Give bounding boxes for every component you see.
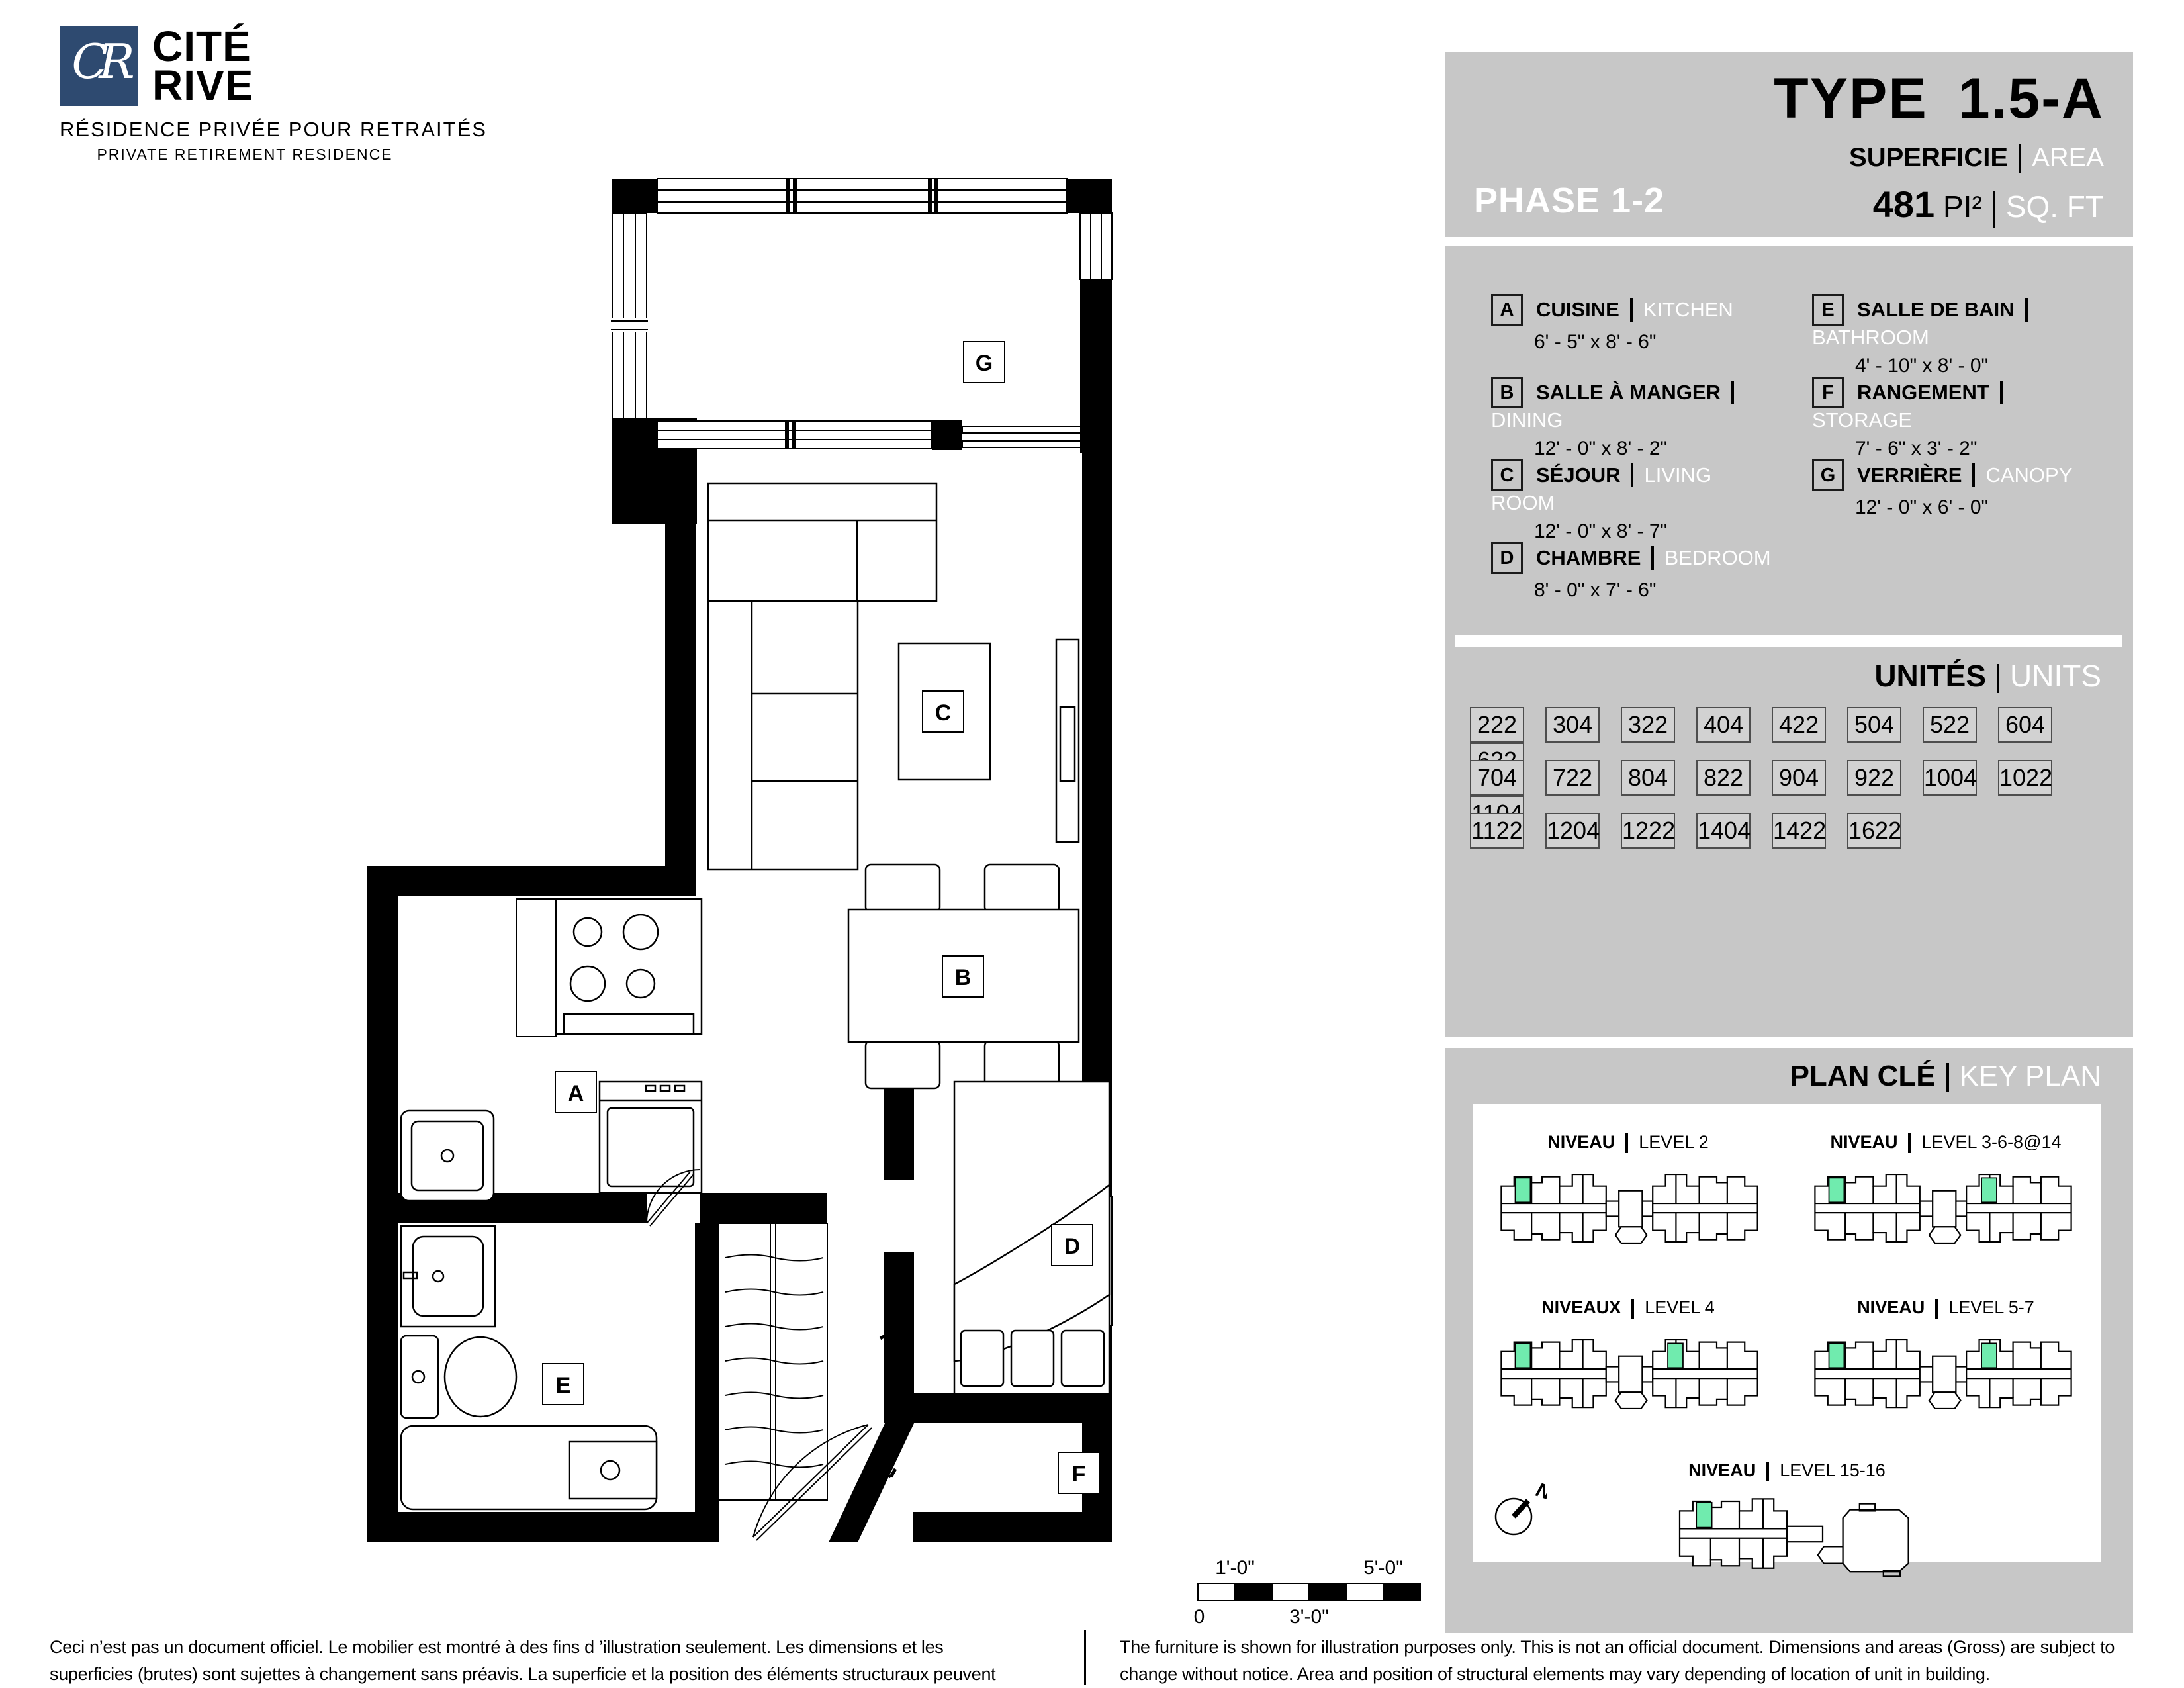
logo-subtitle-fr: RÉSIDENCE PRIVÉE POUR RETRAITÉS <box>60 118 457 142</box>
unit-number: 304 <box>1545 707 1600 743</box>
unit-number: 1622 <box>1847 813 1901 849</box>
disclaimer-en: The furniture is shown for illustration … <box>1120 1634 2119 1687</box>
legend-item-storage: FRANGEMENTSTORAGE 7' - 6" x 3' - 2" <box>1812 377 2103 459</box>
unit-number: 504 <box>1847 707 1901 743</box>
room-label-b: B <box>942 956 983 997</box>
units-title: UNITÉSUNITS <box>1874 658 2101 694</box>
room-label-e: E <box>543 1364 584 1405</box>
separator-bar <box>1455 635 2122 647</box>
level-3-6-8-label: NIVEAULEVEL 3-6-8@14 <box>1790 1132 2101 1153</box>
toilet <box>401 1336 516 1418</box>
key-plan-level-2 <box>1487 1165 1772 1252</box>
scale-label-3ft: 3'-0" <box>1289 1606 1329 1628</box>
svg-text:D: D <box>1064 1234 1081 1259</box>
unit-number: 222 <box>1470 707 1524 743</box>
scale-label-0: 0 <box>1194 1606 1205 1628</box>
unit-number: 822 <box>1696 760 1751 796</box>
svg-text:A: A <box>568 1081 584 1106</box>
highlighted-unit <box>1516 1178 1531 1202</box>
svg-text:B: B <box>955 965 972 990</box>
legend-item-living-room: CSÉJOURLIVING ROOM 12' - 0" x 8' - 7" <box>1491 459 1776 542</box>
entry-door <box>753 1333 895 1540</box>
highlighted-unit <box>1829 1343 1844 1368</box>
unit-number: 604 <box>1998 707 2052 743</box>
highlighted-unit <box>1829 1178 1844 1202</box>
unit-number: 722 <box>1545 760 1600 796</box>
logo-subtitle-en: PRIVATE RETIREMENT RESIDENCE <box>60 146 430 164</box>
legend-column-right: ESALLE DE BAINBATHROOM 4' - 10" x 8' - 0… <box>1812 294 2103 542</box>
bathtub <box>401 1426 657 1509</box>
key-plan-level-4 <box>1487 1331 1772 1418</box>
scale-bar: 1'-0" 5'-0" 0 3'-0" <box>1185 1556 1436 1635</box>
compass-icon: N <box>1487 1478 1547 1544</box>
key-plan-title: PLAN CLÉKEY PLAN <box>1790 1060 2101 1093</box>
units-row-3: 112212041222140414221622 <box>1470 813 2118 866</box>
scale-label-5ft: 5'-0" <box>1363 1557 1403 1579</box>
unit-number: 922 <box>1847 760 1901 796</box>
level-4-label: NIVEAUXLEVEL 4 <box>1473 1297 1784 1319</box>
type-header-panel: PHASE 1-2 TYPE1.5-A SUPERFICIEAREA 481 P… <box>1445 52 2133 237</box>
unit-number: 422 <box>1772 707 1826 743</box>
svg-text:C: C <box>935 700 952 726</box>
highlighted-unit <box>1981 1343 1997 1368</box>
unit-number: 1422 <box>1772 813 1826 849</box>
legend-item-bedroom: DCHAMBREBEDROOM 8' - 0" x 7' - 6" <box>1491 542 1776 625</box>
legend-item-bathroom: ESALLE DE BAINBATHROOM 4' - 10" x 8' - 0… <box>1812 294 2103 377</box>
kitchen-sink <box>401 1111 494 1201</box>
cite-rive-logo: CR CITÉ RIVE RÉSIDENCE PRIVÉE POUR RETRA… <box>60 26 457 164</box>
logo-initials: CR <box>71 34 133 89</box>
area-value: 481 PI²SQ. FT <box>1873 183 2104 228</box>
room-label-d: D <box>1052 1225 1093 1266</box>
highlighted-unit <box>1516 1343 1531 1368</box>
legend-item-canopy: GVERRIÈRECANOPY 12' - 0" x 6' - 0" <box>1812 459 2103 542</box>
room-label-g: G <box>964 342 1005 383</box>
closet <box>719 1223 827 1500</box>
unit-number: 1204 <box>1545 813 1600 849</box>
unit-number: 1222 <box>1621 813 1675 849</box>
room-label-a: A <box>555 1072 596 1113</box>
key-plan-level-5-7 <box>1801 1331 2085 1418</box>
logo-name: CITÉ RIVE <box>152 27 253 105</box>
units-grid: 222304322404422504522604622 704722804822… <box>1470 707 2118 866</box>
tv-console <box>1056 639 1079 842</box>
highlighted-unit <box>1668 1343 1683 1368</box>
stove <box>516 899 702 1037</box>
phase-label: PHASE 1-2 <box>1474 180 1664 221</box>
key-plan-box: NIVEAULEVEL 2 NIVEAULEVEL 3-6-8@14 NIVEA… <box>1473 1104 2101 1562</box>
unit-number: 1404 <box>1696 813 1751 849</box>
legend-item-kitchen: ACUISINEKITCHEN 6' - 5" x 8' - 6" <box>1491 294 1776 377</box>
type-title: TYPE1.5-A <box>1774 66 2104 132</box>
level-2-label: NIVEAULEVEL 2 <box>1473 1132 1784 1153</box>
unit-number: 404 <box>1696 707 1751 743</box>
unit-number: 704 <box>1470 760 1524 796</box>
bathroom-vanity <box>401 1226 495 1327</box>
unit-number: 1004 <box>1923 760 1977 796</box>
highlighted-unit <box>1981 1178 1997 1202</box>
disclaimer-fr: Ceci n’est pas un document officiel. Le … <box>50 1634 1023 1688</box>
unit-number: 1022 <box>1998 760 2052 796</box>
level-15-16-label: NIVEAULEVEL 15-16 <box>1473 1460 2101 1481</box>
legend-column-left: ACUISINEKITCHEN 6' - 5" x 8' - 6" BSALLE… <box>1491 294 1776 625</box>
key-plan-level-3-6-8 <box>1801 1165 2085 1252</box>
svg-text:G: G <box>976 351 993 376</box>
level-5-7-label: NIVEAULEVEL 5-7 <box>1790 1297 2101 1319</box>
legend-units-panel: ACUISINEKITCHEN 6' - 5" x 8' - 6" BSALLE… <box>1445 246 2133 1037</box>
legend-item-dining: BSALLE À MANGERDINING 12' - 0" x 8' - 2" <box>1491 377 1776 459</box>
units-row-2: 704722804822904922100410221104 <box>1470 760 2118 813</box>
key-plan-panel: PLAN CLÉKEY PLAN NIVEAULEVEL 2 NIVEAULEV… <box>1445 1048 2133 1633</box>
disclaimer-divider <box>1084 1630 1086 1685</box>
svg-text:F: F <box>1072 1462 1086 1487</box>
brochure-page: CR CITÉ RIVE RÉSIDENCE PRIVÉE POUR RETRA… <box>0 0 2184 1688</box>
floor-plan: G C A B D E F <box>357 165 1178 1542</box>
scale-label-1ft: 1'-0" <box>1215 1557 1255 1579</box>
highlighted-unit <box>1696 1503 1711 1528</box>
units-row-1: 222304322404422504522604622 <box>1470 707 2118 760</box>
unit-number: 904 <box>1772 760 1826 796</box>
superficie-area-label: SUPERFICIEAREA <box>1849 143 2104 173</box>
unit-number: 522 <box>1923 707 1977 743</box>
svg-text:E: E <box>556 1373 571 1398</box>
key-plan-level-15-16 <box>1641 1489 1933 1579</box>
unit-number: 322 <box>1621 707 1675 743</box>
room-label-f: F <box>1058 1452 1099 1493</box>
unit-number: 1122 <box>1470 813 1524 849</box>
logo-monogram-icon: CR <box>60 26 138 106</box>
floor-plan-furniture <box>401 483 1109 1540</box>
compass-north-label: N <box>1533 1479 1547 1504</box>
room-label-c: C <box>923 691 964 732</box>
unit-number: 804 <box>1621 760 1675 796</box>
